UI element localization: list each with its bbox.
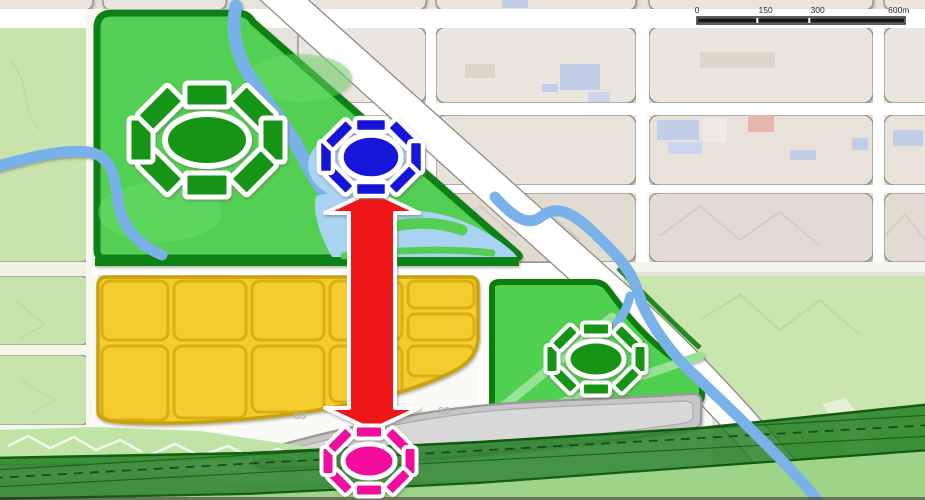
scale-bar-segment	[810, 18, 904, 23]
flower-petal	[582, 323, 610, 336]
scale-bar-segment	[758, 18, 808, 23]
green-plaza-flower-large	[129, 83, 285, 197]
flower-center	[343, 444, 395, 478]
flower-petal	[582, 383, 610, 396]
flower-center	[568, 341, 624, 377]
scale-bar-label: 300	[811, 5, 825, 15]
flower-petal	[185, 83, 229, 107]
planning-map: S3 S3 0150300600m	[0, 0, 925, 500]
pink-node-flower	[322, 426, 417, 497]
scale-bar-label: 150	[759, 5, 773, 15]
flower-petal	[355, 118, 387, 132]
planning-map-canvas: S3 S3 0150300600m	[0, 0, 925, 500]
flower-petal	[355, 182, 387, 196]
scale-bar-segment	[698, 18, 756, 23]
flower-petal	[185, 173, 229, 197]
flower-center	[341, 135, 401, 179]
flower-center	[165, 114, 249, 166]
blue-node-flower	[319, 118, 423, 196]
scale-bar-label: 0	[695, 5, 700, 15]
flower-petal	[355, 484, 383, 497]
road-label-s3: S3	[294, 411, 307, 422]
scale-bar-label: 600m	[888, 5, 909, 15]
flower-petal	[355, 426, 383, 439]
road-label-s3: S3	[438, 406, 451, 417]
